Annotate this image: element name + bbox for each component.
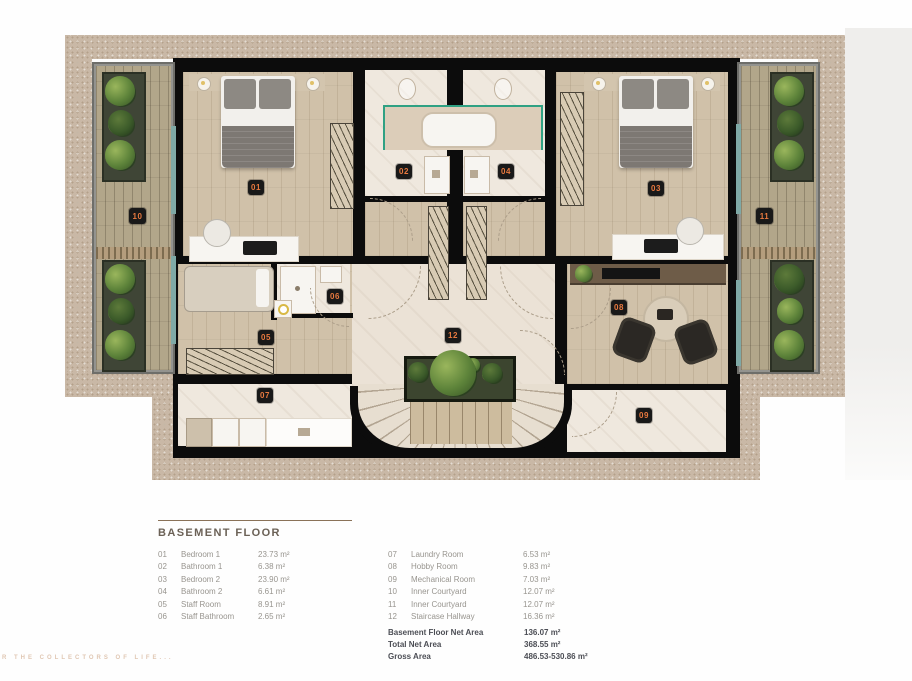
courtyard11-grate	[741, 247, 816, 259]
window-glass	[736, 124, 741, 214]
room-name: Staff Room	[181, 599, 258, 611]
window-glass	[171, 126, 176, 214]
room-area: 23.90 m²	[258, 574, 290, 586]
cabinet-icon	[186, 418, 212, 447]
outer-wall-band-right	[818, 35, 845, 397]
plant-icon	[105, 140, 135, 170]
outer-wall-band-step-left	[65, 372, 174, 397]
legend-item: 10Inner Courtyard12.07 m²	[388, 586, 608, 598]
room-name: Bathroom 1	[181, 561, 258, 573]
room-name: Laundry Room	[411, 549, 523, 561]
room-area: 7.03 m²	[523, 574, 550, 586]
room-area: 12.07 m²	[523, 586, 555, 598]
room-badge-07: 07	[257, 388, 273, 403]
room-badge-02: 02	[396, 164, 412, 179]
total-value: 368.55 m²	[524, 639, 560, 651]
room-number: 06	[158, 611, 181, 623]
plant-icon	[105, 76, 135, 106]
room-number: 01	[158, 549, 181, 561]
room-name: Bedroom 1	[181, 549, 258, 561]
legend-item: 03Bedroom 223.90 m²	[158, 574, 378, 586]
plant-icon	[774, 264, 804, 294]
total-value: 136.07 m²	[524, 627, 560, 639]
room-name: Bedroom 2	[181, 574, 258, 586]
bed-icon	[619, 76, 693, 168]
pillow	[256, 269, 269, 307]
room-number: 04	[158, 586, 181, 598]
legend-item: 01Bedroom 123.73 m²	[158, 549, 378, 561]
total-value: 486.53-530.86 m²	[524, 651, 588, 663]
wardrobe-staff-room	[186, 348, 274, 375]
bathtub-icon	[421, 112, 497, 148]
shower-head-icon	[295, 286, 300, 291]
room-area: 9.83 m²	[523, 561, 550, 573]
legend-item: 06Staff Bathroom2.65 m²	[158, 611, 378, 623]
floor-plan-page: 01 02 03 04 05 06 07 08 09 10 11 12 BASE…	[0, 0, 912, 681]
legend-item: 08Hobby Room9.83 m²	[388, 561, 608, 573]
room-number: 03	[158, 574, 181, 586]
room-badge-11: 11	[756, 208, 773, 224]
outer-wall-band-top	[65, 35, 845, 59]
dryer-icon	[239, 418, 266, 447]
legend-column-right: 07Laundry Room6.53 m² 08Hobby Room9.83 m…	[388, 549, 608, 623]
lamp-icon	[197, 77, 211, 91]
room-area: 16.36 m²	[523, 611, 555, 623]
room-area: 12.07 m²	[523, 599, 555, 611]
total-row: Gross Area486.53-530.86 m²	[388, 651, 628, 663]
plant-icon	[774, 76, 804, 106]
legend-item: 12Staircase Hallway16.36 m²	[388, 611, 608, 623]
lamp-icon	[306, 77, 320, 91]
room-badge-06: 06	[327, 289, 343, 304]
lamp-icon	[592, 77, 606, 91]
room-number: 11	[388, 599, 411, 611]
pillow	[259, 79, 291, 109]
legend-totals: Basement Floor Net Area136.07 m² Total N…	[388, 627, 628, 664]
legend-item: 11Inner Courtyard12.07 m²	[388, 599, 608, 611]
room-badge-04: 04	[498, 164, 514, 179]
legend-item: 02Bathroom 16.38 m²	[158, 561, 378, 573]
legend-column-left: 01Bedroom 123.73 m² 02Bathroom 16.38 m² …	[158, 549, 378, 623]
plant-icon	[777, 110, 803, 136]
plant-icon	[575, 265, 592, 282]
window-glass	[171, 256, 176, 344]
wardrobe-bedroom1	[330, 123, 354, 209]
room-area: 8.91 m²	[258, 599, 285, 611]
window-glass	[736, 280, 741, 366]
wardrobe-corridor-left	[428, 206, 449, 300]
room-number: 02	[158, 561, 181, 573]
plant-icon	[430, 350, 476, 396]
washer-icon	[212, 418, 239, 447]
plant-icon	[105, 264, 135, 294]
room-badge-10: 10	[129, 208, 146, 224]
faucet-icon	[470, 170, 478, 178]
legend-title: BASEMENT FLOOR	[158, 527, 281, 539]
room-badge-05: 05	[258, 330, 274, 345]
lamp-icon	[278, 304, 289, 315]
brand-watermark: R THE COLLECTORS OF LIFE...	[2, 655, 174, 661]
total-row: Total Net Area368.55 m²	[388, 639, 628, 651]
plant-icon	[774, 330, 804, 360]
outer-wall-band-bottom	[152, 457, 760, 480]
room-badge-01: 01	[248, 180, 264, 195]
room-area: 6.53 m²	[523, 549, 550, 561]
pillow	[224, 79, 256, 109]
plant-icon	[108, 298, 134, 324]
room-badge-12: 12	[445, 328, 461, 343]
total-label: Basement Floor Net Area	[388, 627, 524, 639]
room-number: 10	[388, 586, 411, 598]
total-label: Gross Area	[388, 651, 524, 663]
room-name: Mechanical Room	[411, 574, 523, 586]
courtyard10-grate	[96, 247, 171, 259]
outer-wall-band-left-lower	[152, 397, 174, 459]
plant-icon	[108, 110, 134, 136]
plant-icon	[105, 330, 135, 360]
bed-icon	[221, 76, 295, 168]
room-area: 6.61 m²	[258, 586, 285, 598]
pillow	[657, 79, 689, 109]
room-number: 09	[388, 574, 411, 586]
room-name: Staff Bathroom	[181, 611, 258, 623]
wardrobe-bedroom2	[560, 92, 584, 206]
room-number: 07	[388, 549, 411, 561]
toilet-icon	[494, 78, 512, 100]
toilet-icon	[398, 78, 416, 100]
legend-item: 07Laundry Room6.53 m²	[388, 549, 608, 561]
desk-chair-icon	[203, 219, 231, 247]
legend-rule	[158, 520, 352, 521]
plant-icon	[482, 363, 502, 383]
total-label: Total Net Area	[388, 639, 524, 651]
blanket	[620, 126, 692, 168]
room-name: Bathroom 2	[181, 586, 258, 598]
plant-icon	[774, 140, 804, 170]
room-area: 23.73 m²	[258, 549, 290, 561]
outer-wall-band-left	[65, 35, 92, 397]
legend-item: 05Staff Room8.91 m²	[158, 599, 378, 611]
room-badge-08: 08	[611, 300, 627, 315]
room-badge-09: 09	[636, 408, 652, 423]
plant-icon	[408, 362, 428, 382]
plant-icon	[777, 298, 803, 324]
glass-partition	[541, 105, 543, 150]
pillow	[622, 79, 654, 109]
glass-partition	[383, 105, 543, 107]
blanket	[222, 126, 294, 168]
lamp-icon	[701, 77, 715, 91]
room-number: 08	[388, 561, 411, 573]
room-name: Inner Courtyard	[411, 586, 523, 598]
laptop-icon	[644, 239, 678, 253]
legend-item: 09Mechanical Room7.03 m²	[388, 574, 608, 586]
room-badge-03: 03	[648, 181, 664, 196]
total-row: Basement Floor Net Area136.07 m²	[388, 627, 628, 639]
basement-floor-plan: 01 02 03 04 05 06 07 08 09 10 11 12	[0, 0, 912, 500]
faucet-icon	[432, 170, 440, 178]
outer-wall-band-step-right	[735, 372, 845, 397]
tv-icon	[602, 268, 660, 279]
desk-chair-icon	[676, 217, 704, 245]
room-number: 05	[158, 599, 181, 611]
faucet-icon	[298, 428, 310, 436]
sink-icon	[320, 266, 342, 283]
room-name: Hobby Room	[411, 561, 523, 573]
side-table-icon	[657, 309, 673, 320]
room-number: 12	[388, 611, 411, 623]
room-area: 6.38 m²	[258, 561, 285, 573]
laptop-icon	[243, 241, 277, 255]
room-area: 2.65 m²	[258, 611, 285, 623]
wardrobe-corridor-right	[466, 206, 487, 300]
glass-partition	[383, 105, 385, 150]
room-name: Inner Courtyard	[411, 599, 523, 611]
legend-item: 04Bathroom 26.61 m²	[158, 586, 378, 598]
room-name: Staircase Hallway	[411, 611, 523, 623]
